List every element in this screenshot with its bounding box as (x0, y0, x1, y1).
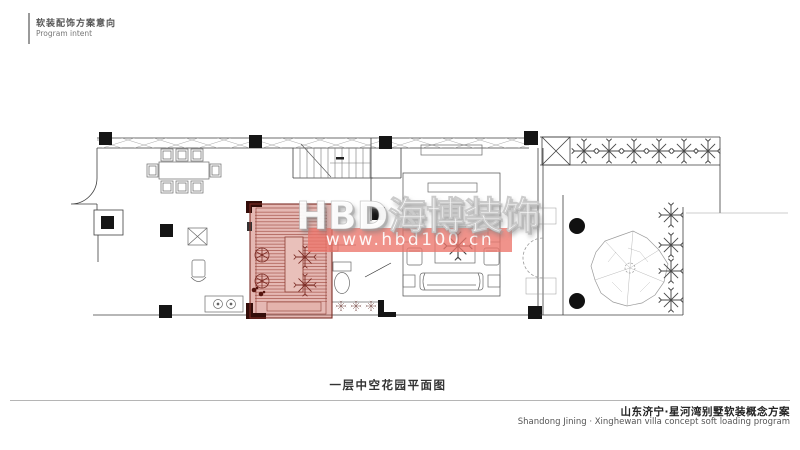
side-table (488, 275, 500, 287)
round-column (569, 293, 585, 309)
wall-corner (378, 300, 396, 317)
hedge-row (572, 139, 720, 163)
dining-set (147, 149, 221, 193)
large-tree (591, 231, 668, 306)
tv-cabinet (428, 183, 477, 192)
living-room (403, 145, 500, 296)
watermark-url: www.hbd100.cn (326, 230, 494, 250)
toilet-tank (333, 262, 351, 271)
dining-table (159, 162, 209, 179)
armchair-single (191, 260, 206, 282)
outdoor-garden (540, 137, 788, 315)
step (267, 302, 321, 311)
side-table (403, 275, 415, 287)
sofa (420, 273, 483, 290)
plan-caption: 一层中空花园平面图 (288, 377, 488, 393)
footer-title-en: Shandong Jining · Xinghewan villa concep… (518, 417, 790, 427)
dining-chairs (147, 149, 221, 193)
round-column (569, 218, 585, 234)
toilet-bowl (335, 273, 350, 294)
planter (285, 237, 303, 292)
cooktop (205, 296, 243, 312)
hall-plants (336, 301, 376, 311)
door-leaf (365, 263, 391, 277)
shaft-box (188, 228, 207, 245)
highlight-atrium-garden (246, 201, 332, 319)
shrub-column (659, 203, 683, 312)
footer-divider-line (10, 400, 790, 401)
staircase (300, 144, 371, 178)
watermark-banner: www.hbd100.cn (308, 228, 512, 252)
